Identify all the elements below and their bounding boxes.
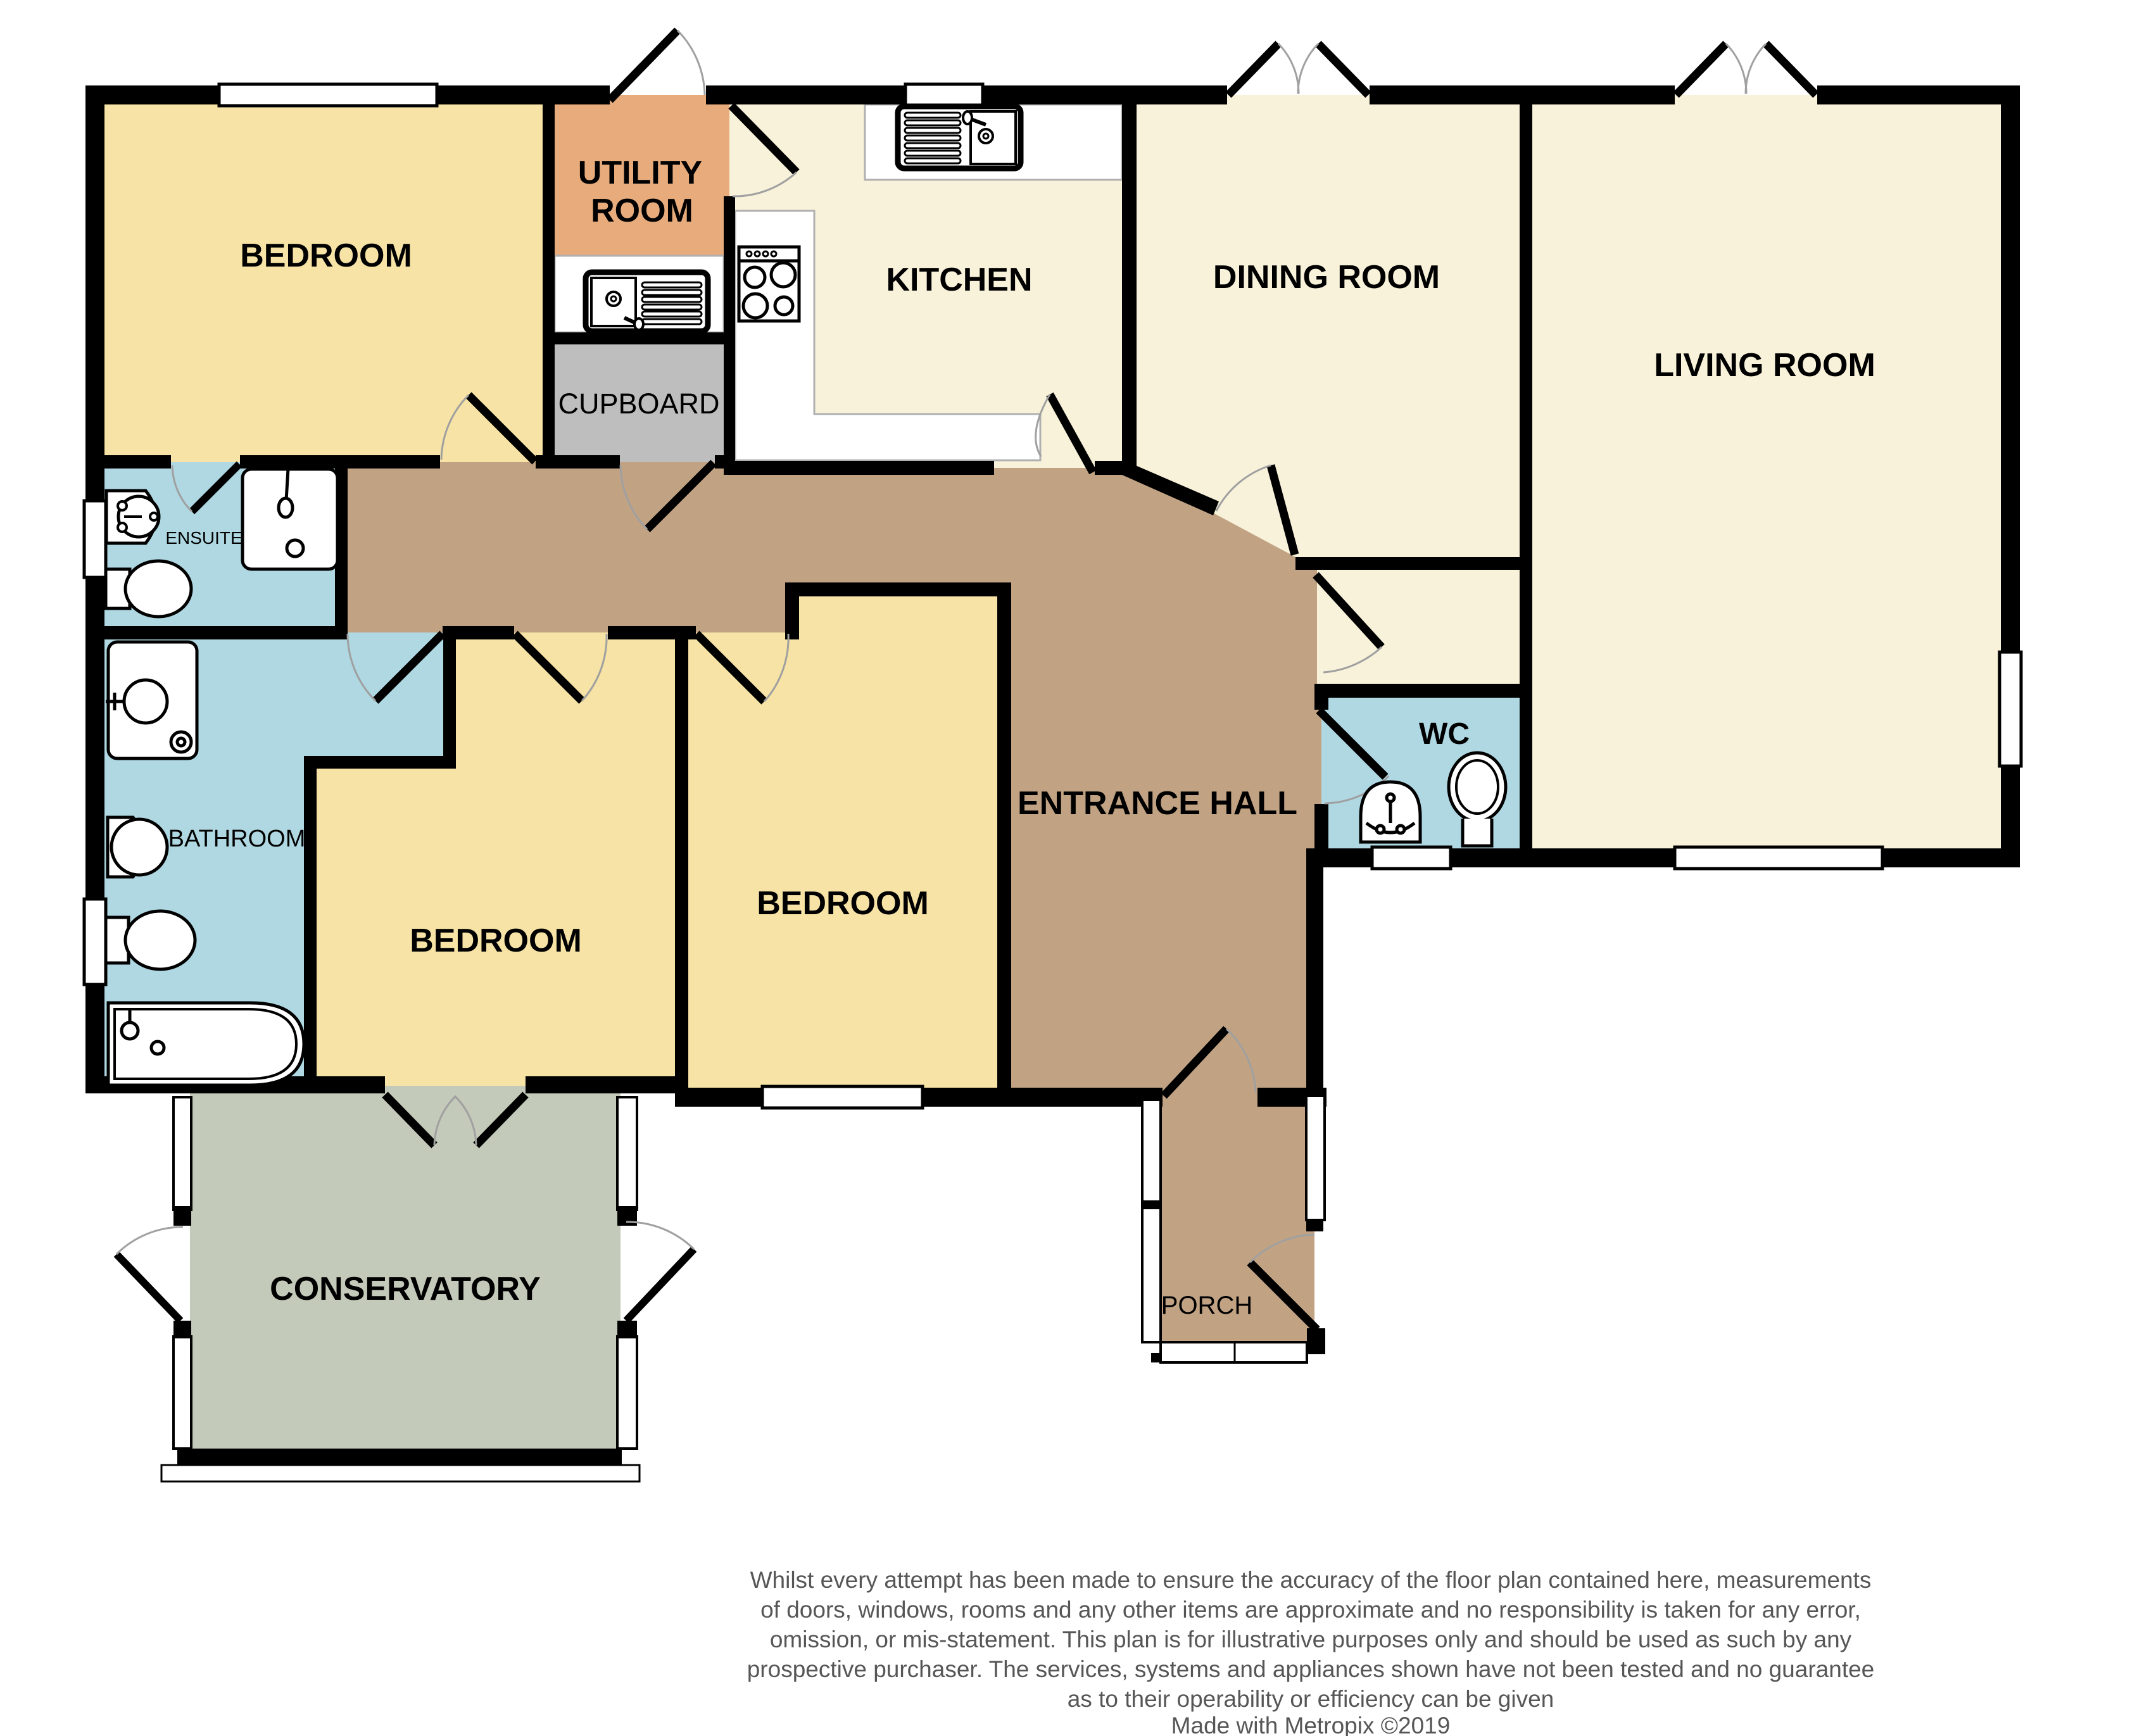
svg-text:CUPBOARD: CUPBOARD <box>558 387 719 420</box>
svg-text:UTILITY: UTILITY <box>578 154 702 191</box>
svg-text:DINING ROOM: DINING ROOM <box>1213 259 1440 296</box>
svg-text:prospective purchaser. The ser: prospective purchaser. The services, sys… <box>747 1656 1875 1682</box>
svg-text:ENSUITE: ENSUITE <box>165 528 242 548</box>
svg-text:ENTRANCE HALL: ENTRANCE HALL <box>1018 785 1297 822</box>
svg-text:Made with Metropix ©2019: Made with Metropix ©2019 <box>1171 1713 1451 1736</box>
svg-text:Whilst every attempt has been: Whilst every attempt has been made to en… <box>750 1567 1872 1593</box>
svg-text:CONSERVATORY: CONSERVATORY <box>270 1271 541 1307</box>
svg-text:BEDROOM: BEDROOM <box>757 885 929 922</box>
svg-text:BATHROOM: BATHROOM <box>168 826 306 852</box>
svg-text:BEDROOM: BEDROOM <box>240 237 412 274</box>
svg-text:omission, or mis-statement. Th: omission, or mis-statement. This plan is… <box>770 1626 1852 1652</box>
svg-text:WC: WC <box>1419 717 1470 751</box>
svg-text:as to their operability or eff: as to their operability or efficiency ca… <box>1068 1686 1554 1712</box>
svg-text:BEDROOM: BEDROOM <box>410 922 582 959</box>
svg-text:of doors, windows, rooms and a: of doors, windows, rooms and any other i… <box>760 1597 1861 1623</box>
svg-text:KITCHEN: KITCHEN <box>886 261 1032 298</box>
svg-text:ROOM: ROOM <box>591 192 693 229</box>
svg-text:LIVING ROOM: LIVING ROOM <box>1654 347 1875 384</box>
svg-text:PORCH: PORCH <box>1161 1292 1252 1319</box>
